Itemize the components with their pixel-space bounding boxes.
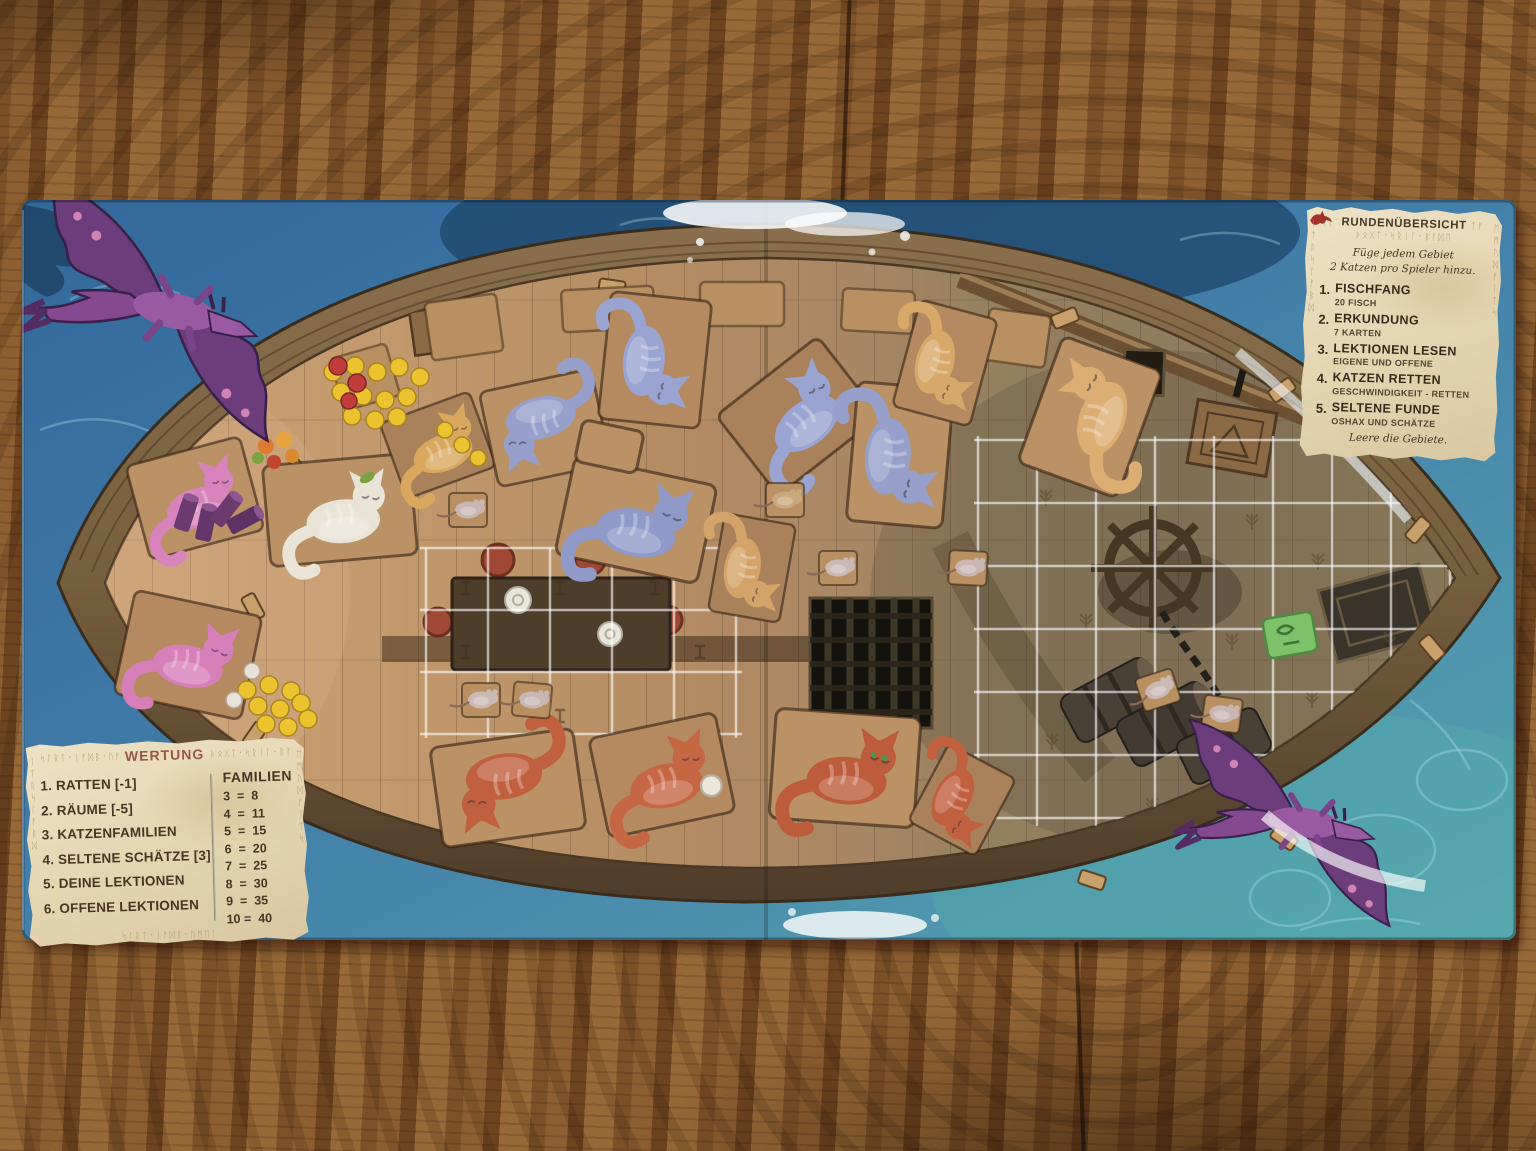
phase-item: 1. FISCHFANG20 FISCH <box>1319 282 1486 311</box>
green-treasure-tile <box>1262 611 1318 659</box>
cargo-grate <box>810 598 932 728</box>
rune-decoration: ᛋᛚᚱᛏ᛫ᛁᚠᛞᛒ᛫ᚢᛗᛖᛚ <box>39 752 119 763</box>
scoring-panel-title: WERTUNG <box>125 746 205 764</box>
scoring-panel: ᛋᛚᚱᛏ᛫ᛁᚠᛞᛒ᛫ᚢᛗᛖᛚ WERTUNG ᚦᛟᚷᛏ᛫ᛋᚱᛁᛚ᛫ᛒᚠᛞᛖ 1.… <box>23 736 311 948</box>
phase-list: 1. FISCHFANG20 FISCH 2. ERKUNDUNG7 KARTE… <box>1315 282 1485 430</box>
scoring-item: 4. SELTENE SCHÄTZE [3] <box>42 843 211 872</box>
game-board-graphic <box>0 0 1536 1151</box>
round-panel-intro: Füge jedem Gebiet 2 Katzen pro Spieler h… <box>1320 245 1487 280</box>
orange-cat-tile <box>768 708 921 838</box>
plate <box>598 622 622 646</box>
red-basket <box>424 608 452 636</box>
phase-item: 2. ERKUNDUNG7 KARTEN <box>1318 312 1485 341</box>
rune-decoration: ᚦᛟᚷᛏ᛫ᛋᚱᛁᛚ᛫ᛒᚠᛞᛖ <box>1321 230 1487 244</box>
phase-item: 4. KATZEN RETTENGESCHWINDIGKEIT - RETTEN <box>1316 371 1483 400</box>
round-panel-title: RUNDENÜBERSICHT <box>1341 216 1467 231</box>
phase-item: 5. SELTENE FUNDEOSHAX UND SCHÄTZE <box>1315 401 1482 430</box>
rune-decoration: ᛏᚠᛁᛋ <box>1471 221 1488 230</box>
phase-item: 3. LEKTIONEN LESENEIGENE UND OFFENE <box>1317 341 1484 370</box>
rune-decoration: ᚦᛟᚷᛏ᛫ᛋᚱᛁᛚ᛫ᛒᚠᛞᛖ <box>210 747 290 758</box>
scoring-item: 6. OFFENE LEKTIONEN <box>43 892 212 921</box>
board-game-photo: ᛋᛁᛏᚱ RUNDENÜBERSICHT ᛏᚠᛁᛋ ᚦᛟᚷᛏ᛫ᛋᚱᛁᛚ᛫ᛒᚠᛞᛖ… <box>0 0 1536 1151</box>
blue-cat-tile <box>591 291 712 429</box>
crate <box>1187 400 1277 477</box>
scoring-item-list: 1. RATTEN [-1] 2. RÄUME [-5] 3. KATZENFA… <box>40 770 213 934</box>
round-overview-panel: ᛋᛁᛏᚱ RUNDENÜBERSICHT ᛏᚠᛁᛋ ᚦᛟᚷᛏ᛫ᛋᚱᛁᛚ᛫ᛒᚠᛞᛖ… <box>1299 205 1504 462</box>
round-panel-footer: Leere die Gebiete. <box>1315 430 1481 447</box>
